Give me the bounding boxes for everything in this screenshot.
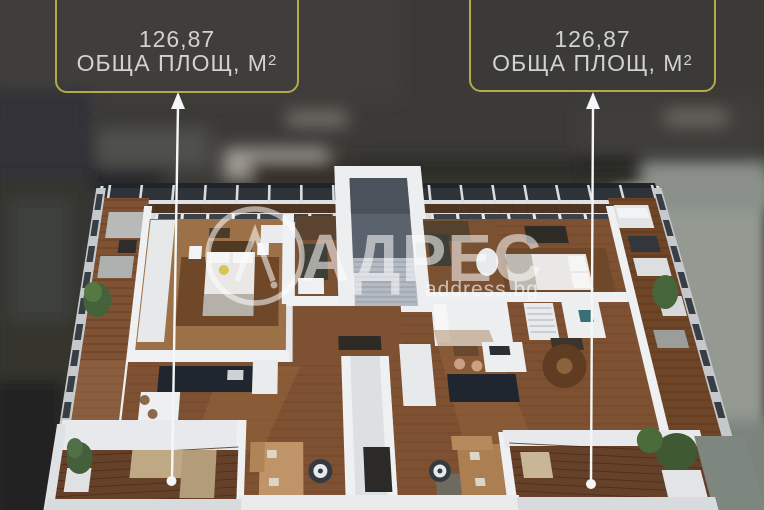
svg-text:address.bg: address.bg xyxy=(425,278,539,301)
